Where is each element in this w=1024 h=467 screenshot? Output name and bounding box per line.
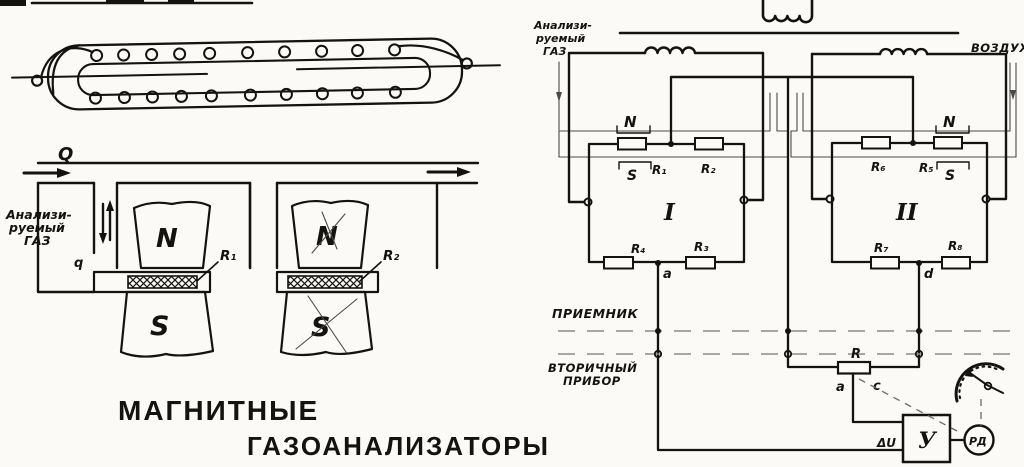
resistor-r5 [934,137,962,149]
flow-magnet-diagram: Q Анализи- руемый ГАЗ q N R₁ S N [5,144,478,357]
transformer-winding [763,0,812,22]
bridge2-numeral: II [895,199,919,226]
thermal-sensor-sketch [11,37,500,110]
bridge2-node-d-label: d [924,267,934,282]
resistor-r2 [695,138,723,150]
bridge1-choke [645,47,695,53]
bridge2-r5-label: R₅ [919,161,934,175]
bridge-circuit-schematic: Анализи- руемый ГАЗ ВОЗДУХ [533,0,1024,462]
flow-arrow-in-head [57,168,71,178]
resistor-r7 [871,257,899,269]
title-line1: МАГНИТНЫЕ [118,395,319,426]
r1-label: R₁ [220,248,236,264]
delta-u-label: ΔU [876,436,896,450]
magnet1-s-label: S [150,311,169,342]
diagram-title: МАГНИТНЫЕ ГАЗОАНАЛИЗАТОРЫ [118,395,550,461]
resistor-r4 [604,257,633,269]
node-d-wire [870,263,919,367]
r2-label: R₂ [383,248,399,264]
bridge2-choke [880,49,927,54]
channel-arrow-up-head [106,200,114,211]
bridge2-r7-label: R₇ [874,241,889,255]
bridge1-r3-label: R₃ [694,240,709,254]
rheostat-body [838,362,870,374]
chamber-II-outline [791,93,1016,157]
scanned-diagram-page: Q Анализи- руемый ГАЗ q N R₁ S N [0,0,1024,467]
resistor-r3 [686,257,715,269]
bridge1-r4-label: R₄ [631,242,646,256]
bridge1-n-label: N [624,113,637,131]
cut-mark [0,0,26,6]
bridge2-s-label: S [945,168,955,184]
gas-right-line2: руемый [535,32,585,45]
magnet2-s-strike [296,296,357,352]
magnetic-gas-analyzer-diagram: Q Анализи- руемый ГАЗ q N R₁ S N [0,0,1024,467]
cut-mark [168,0,194,4]
resistor-r6 [862,137,890,149]
secondary-label-line2: ПРИБОР [563,374,621,388]
cut-mark [106,0,144,4]
air-inlet-arrow [1010,90,1016,100]
gas-right-line1: Анализи- [533,19,592,32]
indicator-dial [956,364,1003,426]
bridge1-numeral: I [663,199,676,226]
bridge1-r1-label: R₁ [652,163,667,177]
bridge2-top-node [910,140,916,146]
sensor2-resistor [288,276,362,288]
bridge1-top-node [668,141,674,147]
magnet1-n-label: N [156,224,178,254]
chamber2-walls [250,183,437,268]
flow-arrow-out-head [457,167,471,177]
secondary-label-line1: ВТОРИЧНЫЙ [548,360,637,375]
terminal-dot-a [655,328,661,334]
bridge2-r6-label: R₆ [871,160,886,174]
bridge1-r2-label: R₂ [701,162,716,176]
bridge2-outer-left [812,54,826,199]
receiver-label: ПРИЕМНИК [552,306,638,321]
chamber-I-outline [559,93,788,157]
channel-arrow-down-head [99,233,107,244]
magnet2-s-label: S [311,312,330,343]
cut-off-top-edge-marks [0,0,252,6]
terminal-dot-center [785,328,791,334]
bridge2-r8-label: R₈ [948,239,963,253]
terminal-dot-d [916,328,922,334]
sensor1-resistor [128,276,197,288]
bridge2-n-label: N [943,113,956,131]
bypass-q-label: q [74,256,83,271]
gas-inlet-arrow [556,92,562,102]
amplifier-label: У [918,428,938,454]
bridge1-outer-right [695,53,763,200]
motor-label: РД [969,435,987,448]
gas-right-line3: ГАЗ [543,45,567,58]
resistor-r1 [618,138,646,150]
rheostat-term-a: a [836,380,845,395]
rheostat-label: R [851,347,861,362]
bridge1-node-a-label: a [663,267,672,282]
resistor-r8 [942,257,970,269]
bridge1-s-label: S [627,168,637,184]
title-line2: ГАЗОАНАЛИЗАТОРЫ [247,431,550,461]
bridge2-outer-right [927,54,1006,199]
